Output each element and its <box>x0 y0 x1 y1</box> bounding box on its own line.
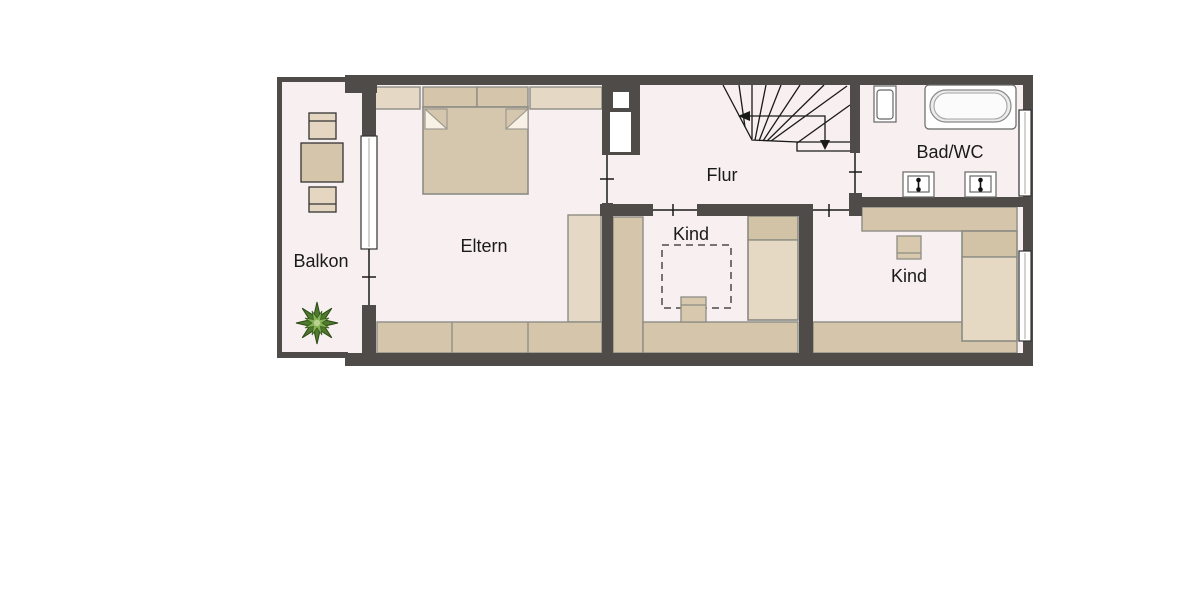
plant-icon <box>296 302 338 344</box>
wall-bottom <box>345 353 1033 366</box>
balcony-rail-left <box>277 77 282 358</box>
stool <box>897 236 921 259</box>
wardrobe-side <box>568 215 601 322</box>
balcony-rail-top <box>277 77 345 82</box>
stool <box>681 297 706 322</box>
bed-head-right <box>477 87 528 107</box>
sink <box>903 172 934 197</box>
bed-body <box>748 240 798 320</box>
wall-west-upper <box>362 93 376 137</box>
wall-flur-kind-b <box>697 204 813 216</box>
floor-plan: Balkon Eltern Flur Kind Kind Bad/WC <box>0 0 1200 600</box>
wall-top <box>345 75 1033 85</box>
label-balkon: Balkon <box>293 251 348 271</box>
bed-pillow <box>748 216 798 240</box>
toilet <box>874 86 896 122</box>
wardrobe-top-right <box>530 87 602 109</box>
label-bad: Bad/WC <box>916 142 983 162</box>
label-kind1: Kind <box>673 224 709 244</box>
wardrobe-top-left <box>373 87 420 109</box>
sink <box>965 172 996 197</box>
wall-bad-kind <box>860 197 1023 207</box>
wall-flur-kind-a <box>600 204 653 216</box>
label-flur: Flur <box>707 165 738 185</box>
shaft-duct-small <box>613 92 629 108</box>
balcony-chair-bottom <box>309 187 336 212</box>
wall-flur-bad <box>850 85 860 153</box>
wardrobe-bottom <box>643 322 798 353</box>
desk <box>862 207 1017 231</box>
wardrobe-left <box>613 217 643 353</box>
wall-kids-divider <box>799 204 813 353</box>
bed-body <box>962 257 1017 341</box>
bathtub <box>925 85 1016 129</box>
double-bed-duvet <box>423 107 528 194</box>
balcony-table <box>301 143 343 182</box>
balcony-chair-top <box>309 113 336 139</box>
wall-west-corner <box>345 75 377 93</box>
label-eltern: Eltern <box>460 236 507 256</box>
wall-eltern-kind <box>602 203 613 353</box>
bed-pillow <box>962 231 1017 257</box>
floor-plan-page: Balkon Eltern Flur Kind Kind Bad/WC <box>0 0 1200 600</box>
bed-head-left <box>423 87 477 107</box>
shaft-duct-large <box>610 112 631 152</box>
wardrobe-row-bottom <box>377 322 602 353</box>
wall-west-lower <box>362 305 376 355</box>
label-kind2: Kind <box>891 266 927 286</box>
